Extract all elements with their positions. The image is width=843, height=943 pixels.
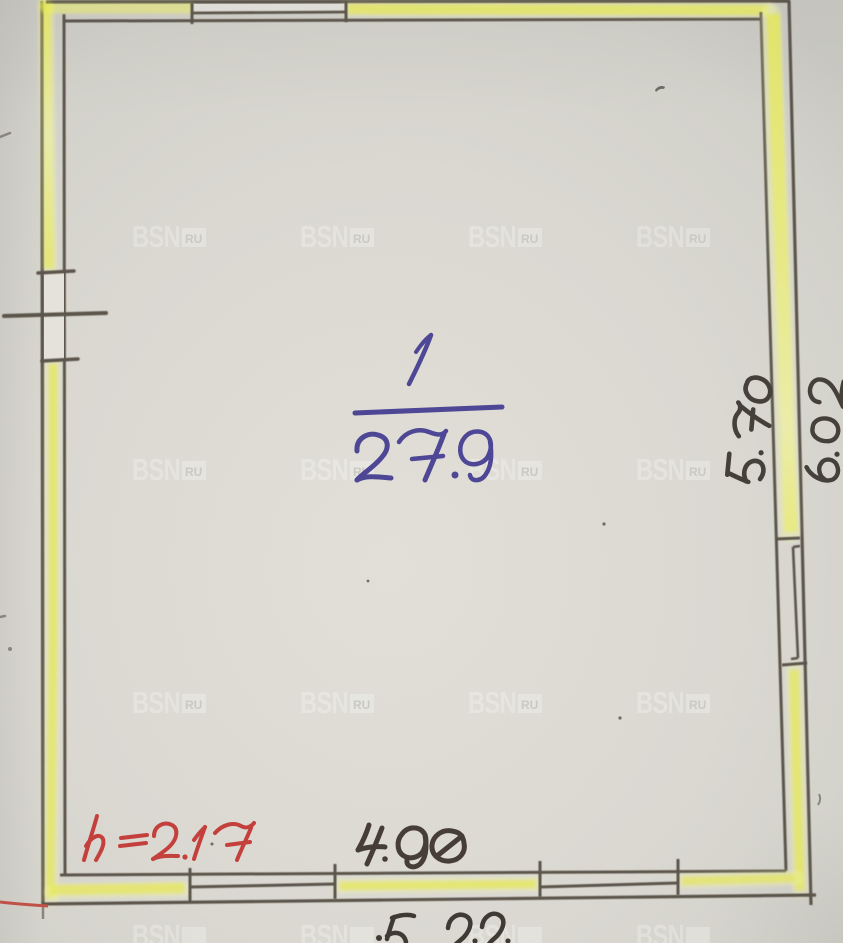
svg-text:BSN: BSN xyxy=(468,219,516,254)
svg-text:RU: RU xyxy=(353,232,370,246)
svg-text:BSN: BSN xyxy=(300,918,348,943)
svg-text:RU: RU xyxy=(521,232,538,246)
svg-text:BSN: BSN xyxy=(132,219,180,254)
svg-text:BSN: BSN xyxy=(468,685,516,720)
svg-text:RU: RU xyxy=(185,465,202,479)
svg-text:BSN: BSN xyxy=(636,918,684,943)
svg-text:RU: RU xyxy=(185,698,202,712)
svg-text:BSN: BSN xyxy=(636,685,684,720)
svg-text:RU: RU xyxy=(689,465,706,479)
svg-text:RU: RU xyxy=(353,698,370,712)
svg-text:BSN: BSN xyxy=(132,452,180,487)
svg-text:RU: RU xyxy=(689,698,706,712)
svg-text:BSN: BSN xyxy=(636,219,684,254)
svg-text:RU: RU xyxy=(689,232,706,246)
svg-text:RU: RU xyxy=(521,465,538,479)
svg-text:RU: RU xyxy=(521,698,538,712)
svg-text:BSN: BSN xyxy=(132,918,180,943)
svg-text:BSN: BSN xyxy=(300,685,348,720)
svg-text:BSN: BSN xyxy=(636,452,684,487)
svg-text:BSN: BSN xyxy=(300,219,348,254)
svg-text:BSN: BSN xyxy=(300,452,348,487)
svg-text:BSN: BSN xyxy=(132,685,180,720)
svg-text:RU: RU xyxy=(185,232,202,246)
